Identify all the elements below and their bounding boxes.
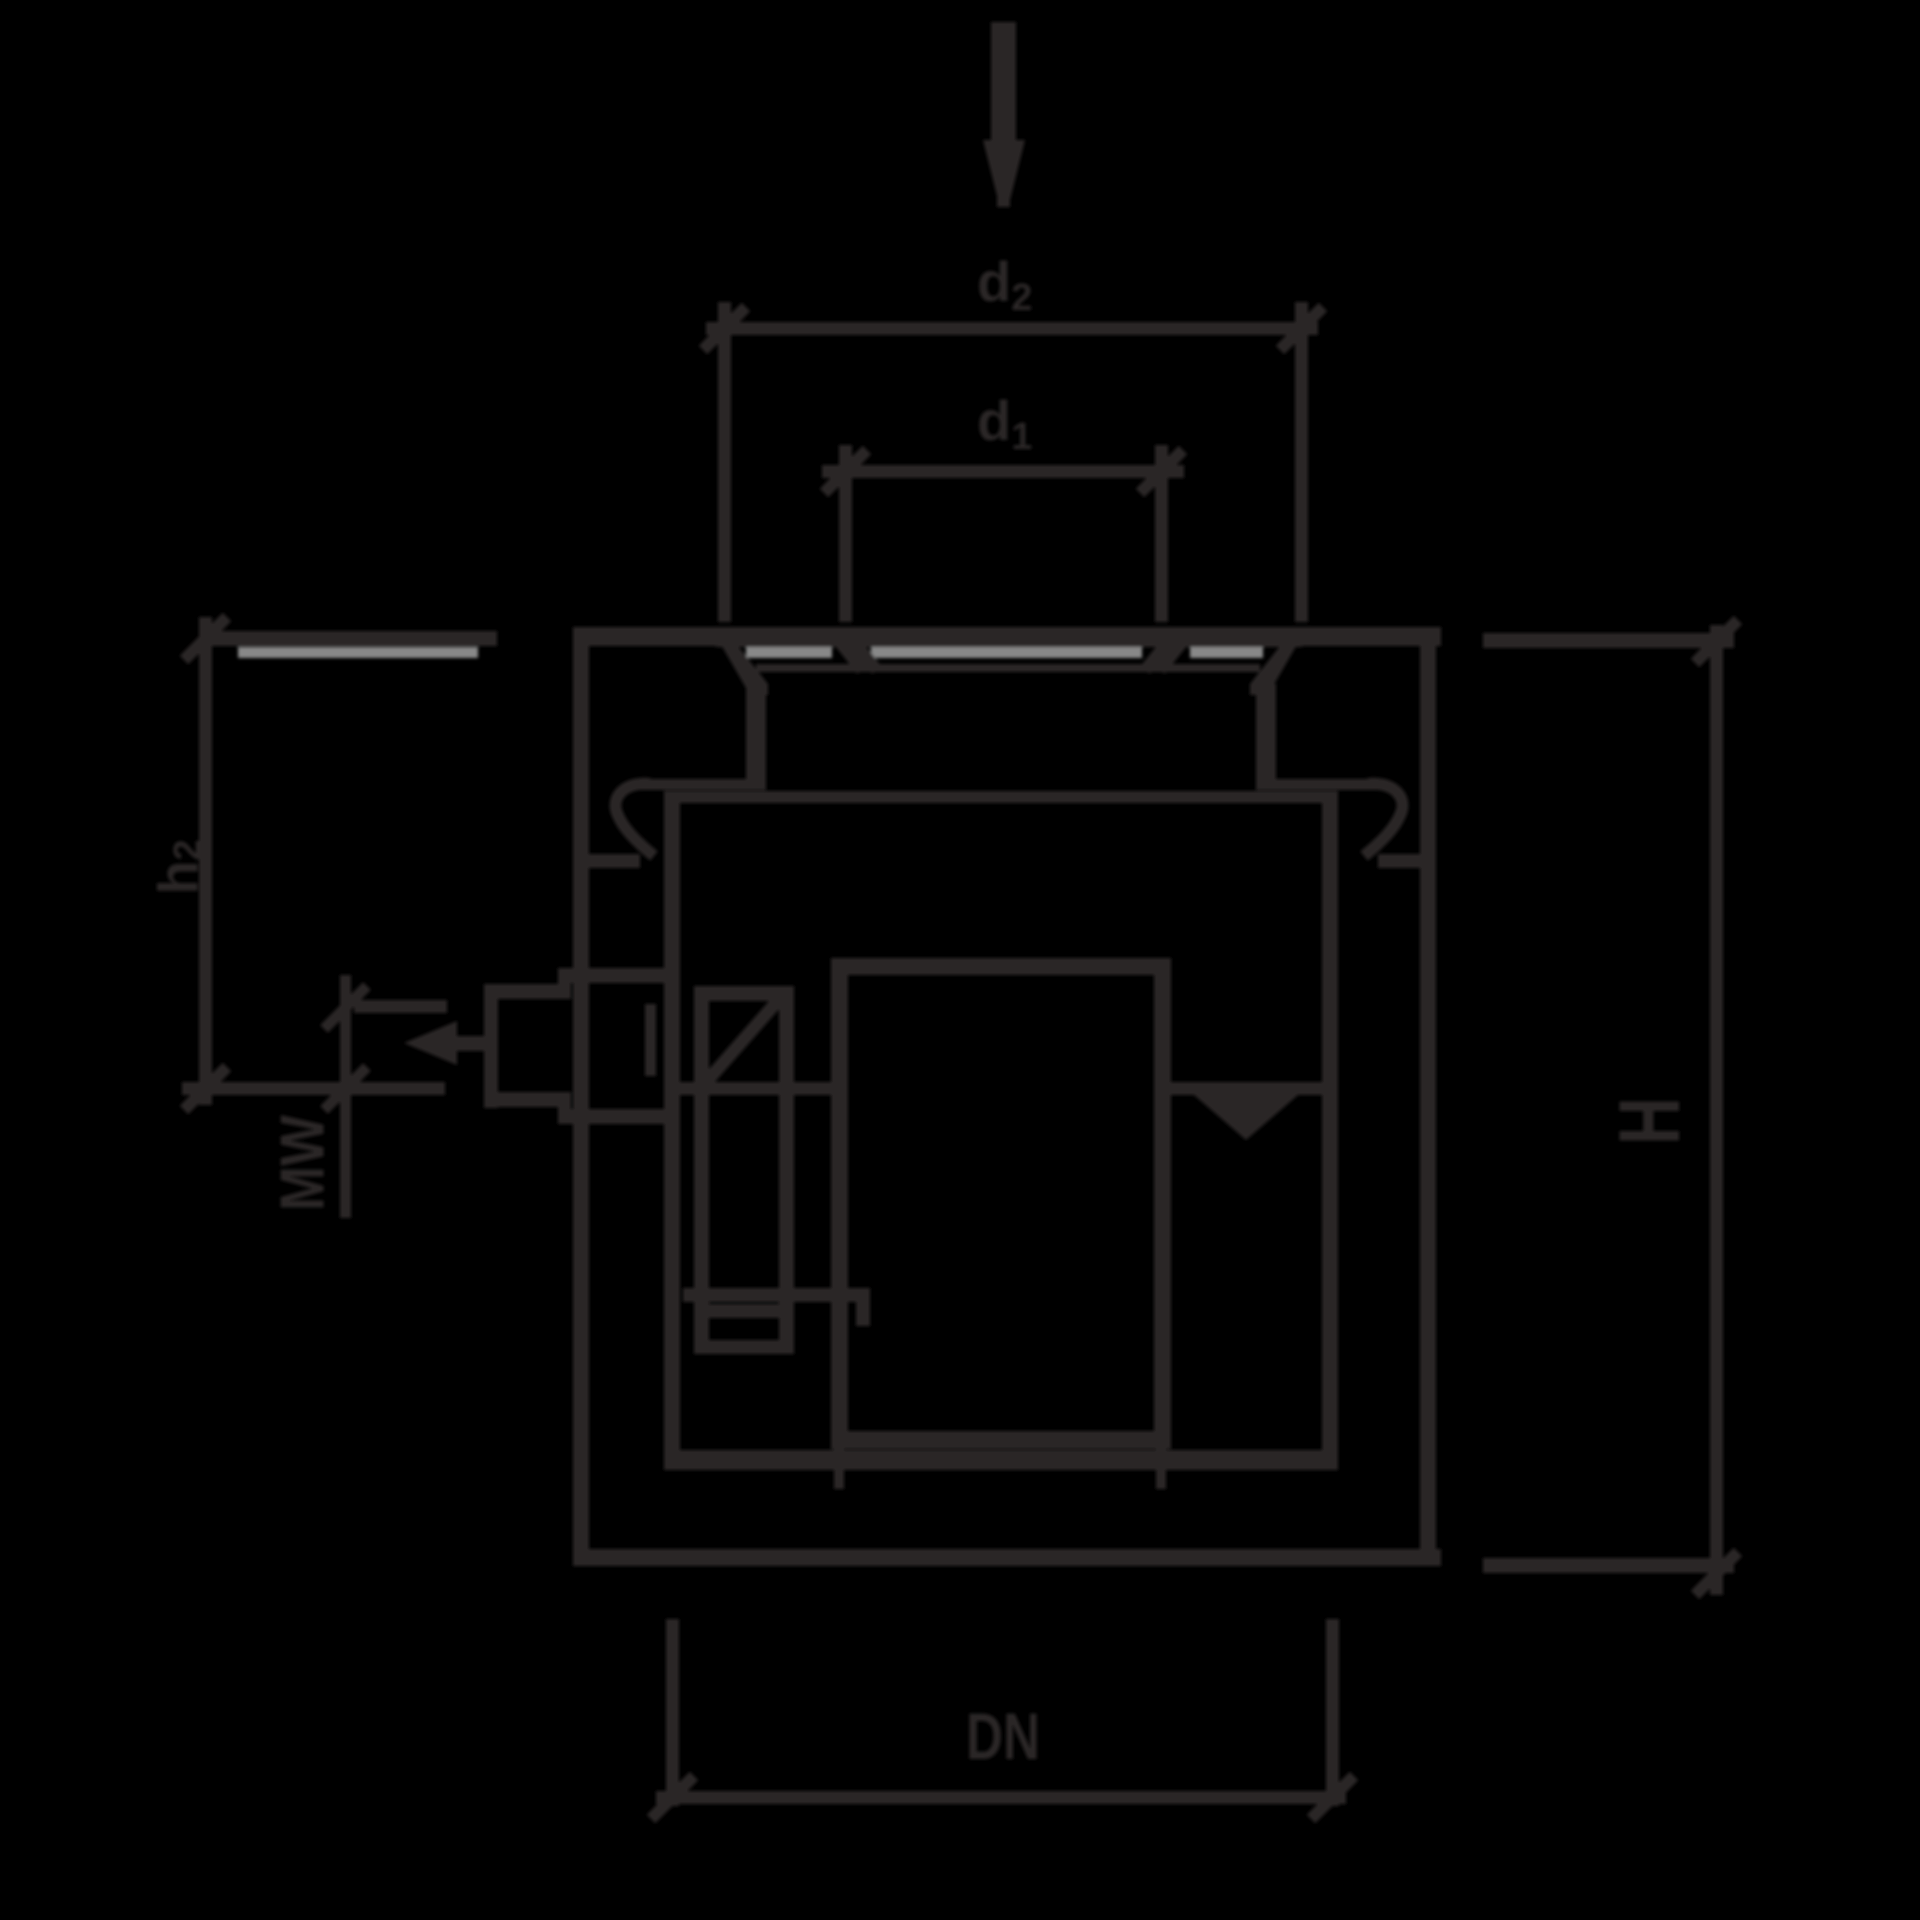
svg-text:H: H xyxy=(1602,1097,1698,1145)
svg-text:MW: MW xyxy=(269,1115,338,1211)
svg-text:DN: DN xyxy=(966,1699,1040,1773)
